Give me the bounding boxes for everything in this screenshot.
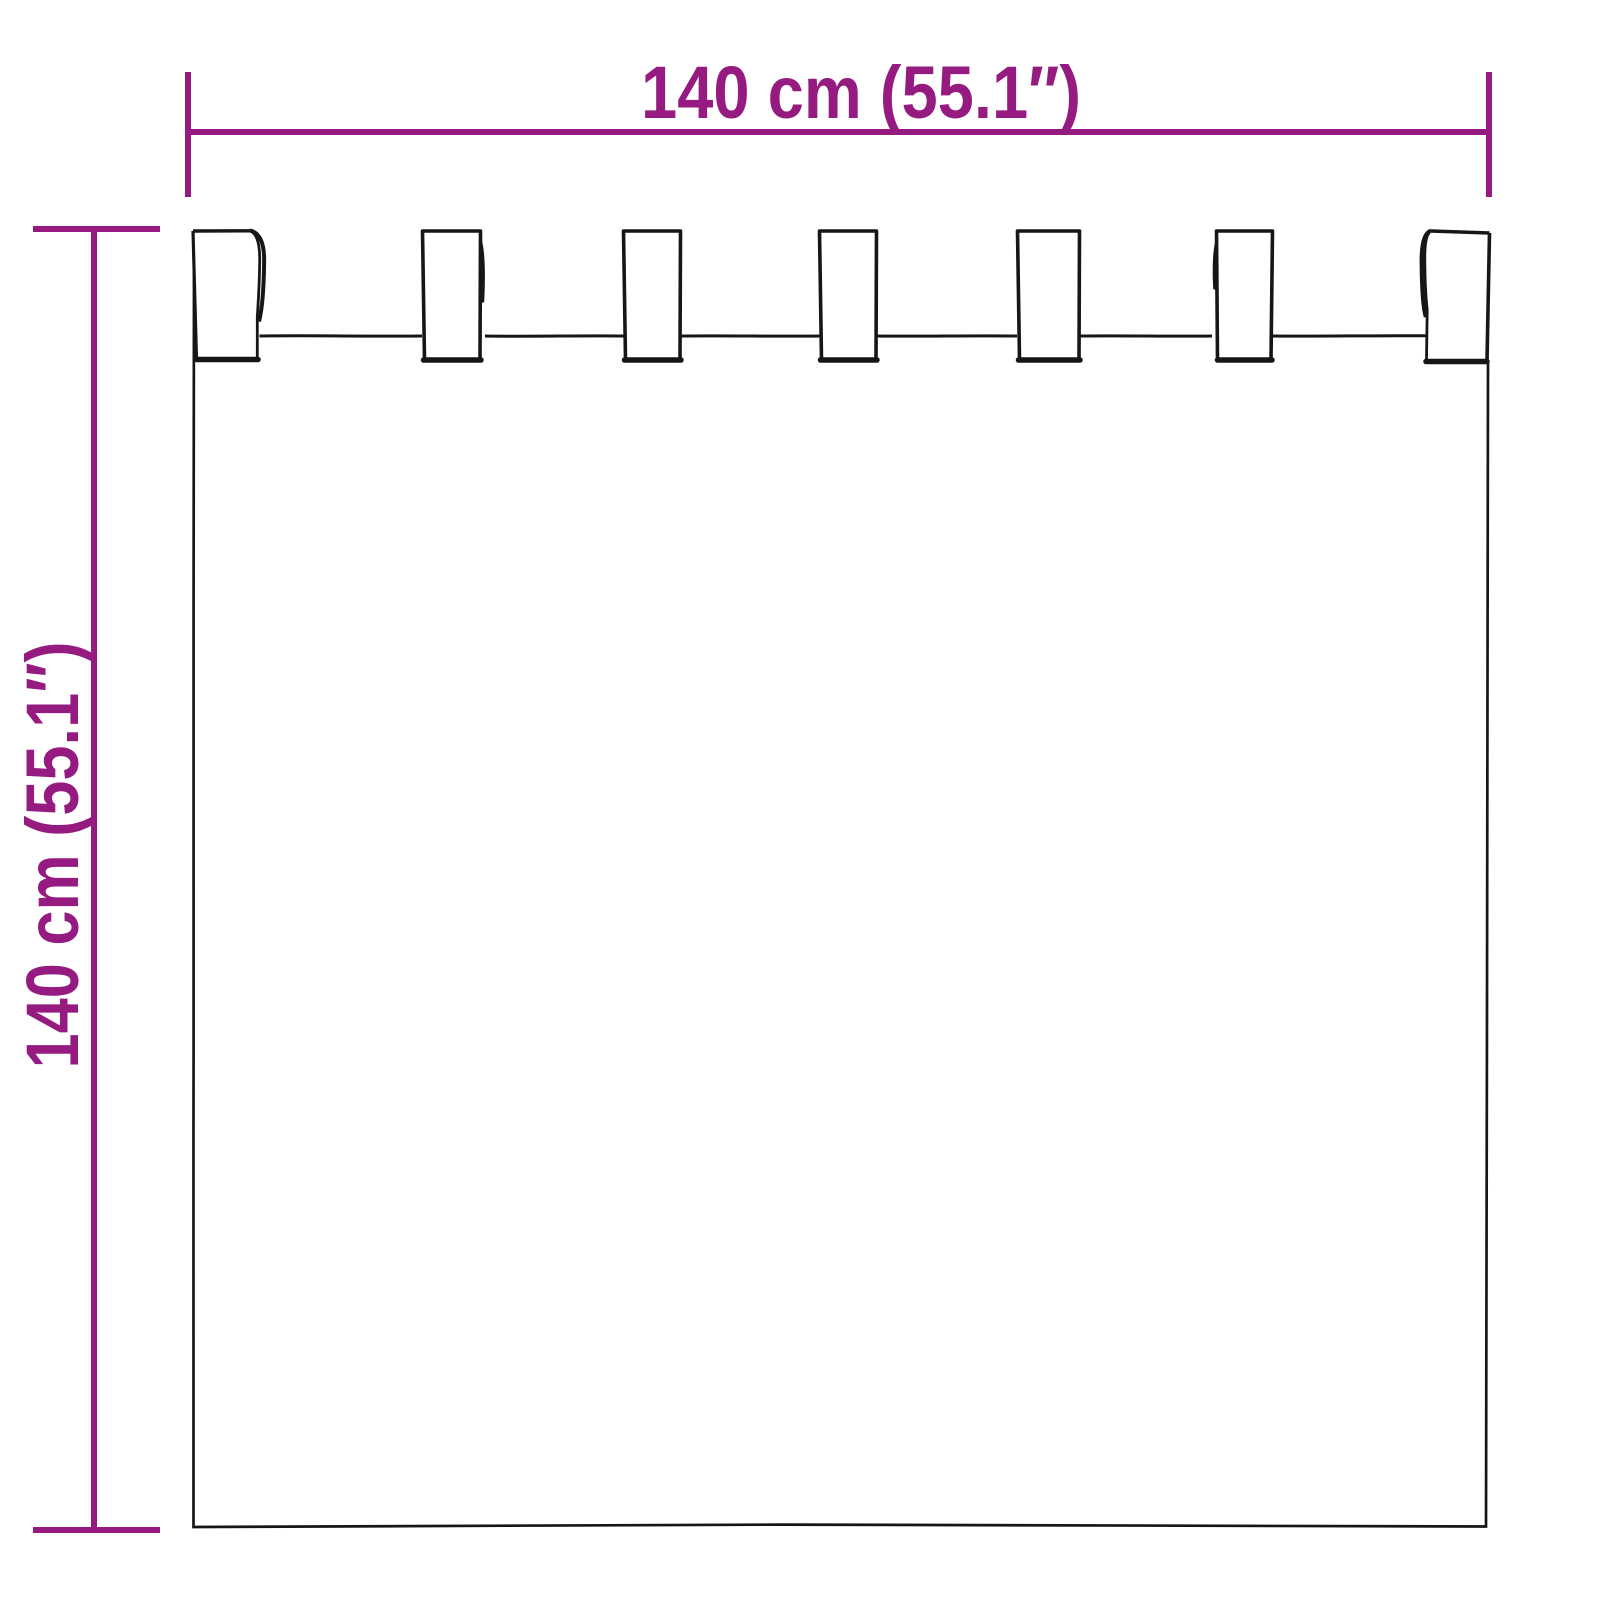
svg-text:140 cm (55.1″): 140 cm (55.1″) (11, 642, 94, 1069)
svg-text:140 cm (55.1″): 140 cm (55.1″) (641, 51, 1081, 134)
